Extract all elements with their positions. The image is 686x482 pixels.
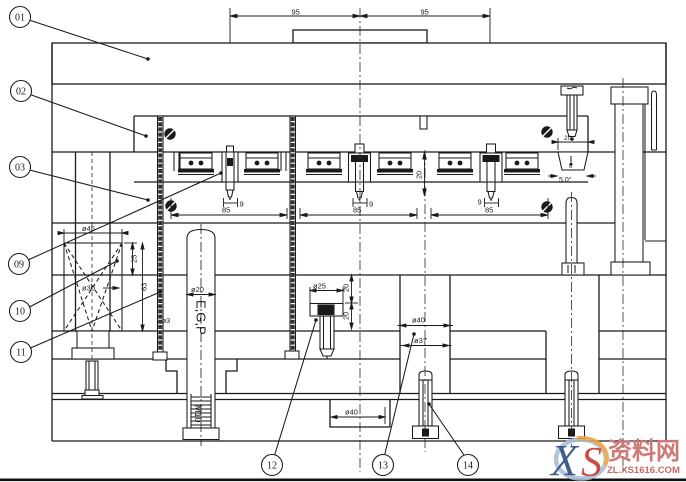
- svg-text:85: 85: [222, 206, 230, 215]
- svg-text:25: 25: [130, 255, 139, 263]
- svg-text:X: X: [549, 436, 580, 482]
- svg-text:11: 11: [16, 348, 26, 359]
- svg-text:E,G,P: E,G,P: [194, 300, 209, 335]
- svg-text:20: 20: [342, 284, 351, 292]
- svg-text:ø40: ø40: [412, 316, 425, 325]
- svg-text:S: S: [581, 440, 602, 482]
- svg-text:10: 10: [15, 307, 25, 318]
- svg-text:03: 03: [15, 163, 25, 174]
- svg-text:63: 63: [140, 283, 149, 291]
- svg-text:85: 85: [353, 206, 361, 215]
- svg-text:ø45: ø45: [82, 224, 95, 233]
- svg-text:ø3: ø3: [162, 318, 170, 325]
- svg-text:9: 9: [478, 198, 482, 207]
- svg-text:ø40: ø40: [345, 408, 358, 417]
- svg-text:95: 95: [421, 8, 429, 17]
- svg-text:20: 20: [564, 135, 572, 142]
- svg-text:14: 14: [463, 461, 473, 472]
- svg-text:ZL.XS1616.COM: ZL.XS1616.COM: [607, 465, 680, 476]
- svg-text:5.0°: 5.0°: [559, 176, 572, 184]
- svg-text:ø37: ø37: [414, 336, 427, 345]
- svg-text:13: 13: [378, 461, 388, 472]
- svg-text:12: 12: [267, 461, 277, 472]
- svg-text:01: 01: [15, 13, 25, 24]
- svg-text:M10: M10: [193, 405, 203, 423]
- svg-text:02: 02: [16, 87, 26, 98]
- svg-text:85: 85: [485, 206, 493, 215]
- svg-text:ø25: ø25: [313, 282, 326, 291]
- svg-text:资料网: 资料网: [608, 438, 680, 465]
- svg-text:20: 20: [342, 312, 351, 320]
- svg-text:ø20: ø20: [191, 285, 204, 294]
- svg-text:09: 09: [14, 260, 24, 271]
- svg-text:9: 9: [240, 200, 244, 209]
- svg-text:95: 95: [292, 8, 300, 17]
- svg-text:20: 20: [415, 171, 424, 179]
- svg-text:ø30: ø30: [82, 284, 95, 293]
- svg-text:9: 9: [369, 200, 373, 209]
